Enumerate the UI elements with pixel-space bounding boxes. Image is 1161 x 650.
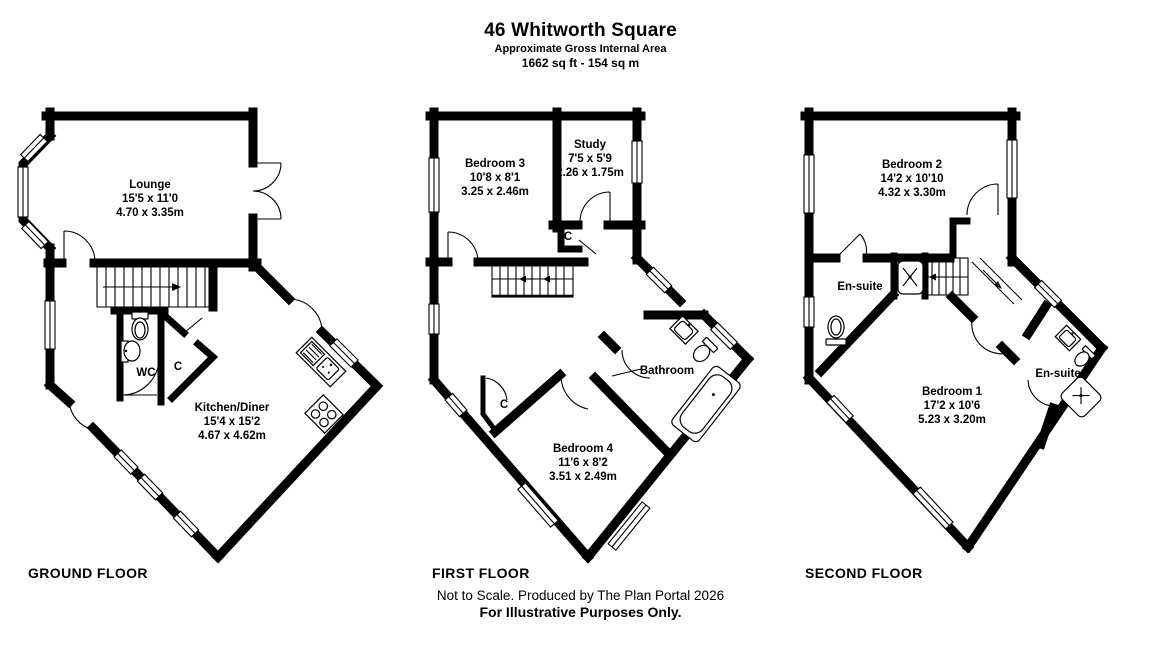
room-label: C [174, 361, 182, 373]
room-label: Bedroom 4 [553, 443, 614, 455]
ground-stairs [97, 267, 213, 307]
room-label: WC [136, 367, 155, 379]
first-stairs [492, 262, 573, 297]
shower-icon [1059, 375, 1103, 419]
ground-floor-plan: Lounge 15'5 x 11'0 4.70 x 3.35m WC C Kit… [18, 112, 377, 581]
hall-window-icon [429, 304, 439, 334]
bedroom3-window-icon [429, 158, 439, 212]
first-floor-plan: Bedroom 3 10'8 x 8'1 3.25 x 2.46m Study … [429, 112, 748, 581]
kitchen-bay-window-icon [137, 474, 162, 500]
room-label: Bedroom 2 [882, 159, 942, 171]
room-dim-metric: 4.67 x 4.62m [198, 430, 266, 442]
toilet-icon [826, 339, 846, 345]
floor-label-first: FIRST FLOOR [432, 565, 530, 581]
bedroom2-window-icon [1007, 140, 1017, 198]
hall-window-icon [45, 301, 55, 349]
floor-label-second: SECOND FLOOR [805, 565, 923, 581]
toilet-icon [690, 337, 718, 365]
floor-label-ground: GROUND FLOOR [28, 565, 148, 581]
floorplan-page: 46 Whitworth Square Approximate Gross In… [0, 0, 1161, 650]
room-dim-metric: 2.26 x 1.75m [556, 167, 624, 179]
room-label: Bedroom 1 [922, 386, 983, 398]
study-window-icon [632, 141, 642, 183]
room-label: Lounge [129, 179, 171, 191]
footer-illustrative-note: For Illustrative Purposes Only. [0, 604, 1161, 620]
ground-windows [18, 134, 358, 536]
room-dim-imperial: 17'2 x 10'6 [924, 400, 981, 412]
bedroom4-window-icon [518, 483, 558, 527]
floorplan-canvas: Lounge 15'5 x 11'0 4.70 x 3.35m WC C Kit… [0, 0, 1161, 650]
room-label: C [500, 399, 508, 411]
room-dim-imperial: 14'2 x 10'10 [880, 173, 943, 185]
ensuite-left-fixtures [826, 261, 923, 345]
room-dim-metric: 5.23 x 3.20m [918, 414, 986, 426]
room-dim-metric: 4.32 x 3.30m [878, 187, 946, 199]
second-stairs [925, 258, 1022, 304]
bedroom2-window-icon [804, 155, 814, 213]
room-dim-imperial: 10'8 x 8'1 [470, 172, 521, 184]
bathroom-fixtures [670, 316, 742, 444]
room-dim-metric: 3.25 x 2.46m [461, 186, 529, 198]
room-dim-imperial: 15'4 x 15'2 [204, 416, 261, 428]
landing-window-icon [646, 267, 671, 292]
shower-icon [898, 261, 923, 294]
room-dim-imperial: 7'5 x 5'9 [568, 153, 612, 165]
wc-fixtures [121, 312, 148, 362]
sink-icon [670, 316, 698, 344]
room-label: Study [574, 139, 607, 151]
second-walls [805, 112, 1102, 547]
kitchen-bay-window-icon [114, 450, 138, 474]
kitchen-bay-window-icon [173, 511, 198, 537]
room-label: C [564, 231, 572, 243]
ensuite-window-icon [804, 297, 814, 327]
room-dim-imperial: 11'6 x 8'2 [558, 457, 608, 469]
footer-disclaimer: Not to Scale. Produced by The Plan Porta… [0, 588, 1161, 603]
second-floor-plan: Bedroom 2 14'2 x 10'10 4.32 x 3.30m En-s… [804, 112, 1103, 581]
bay-window-icon [18, 167, 28, 217]
first-windows [429, 141, 737, 550]
bedroom1-window-icon [827, 395, 853, 422]
room-label: Kitchen/Diner [195, 402, 270, 414]
room-label: Bathroom [640, 365, 694, 377]
room-label: En-suite [1035, 368, 1080, 380]
room-dim-metric: 3.51 x 2.49m [549, 471, 617, 483]
room-dim-imperial: 15'5 x 11'0 [122, 193, 178, 205]
bedroom4-window-icon [445, 393, 467, 416]
room-label: Bedroom 3 [465, 158, 525, 170]
room-label: En-suite [837, 281, 882, 293]
bedroom1-window-icon [913, 487, 953, 529]
ground-walls [23, 112, 377, 557]
bay-window-icon [22, 221, 49, 248]
room-dim-metric: 4.70 x 3.35m [116, 207, 184, 219]
